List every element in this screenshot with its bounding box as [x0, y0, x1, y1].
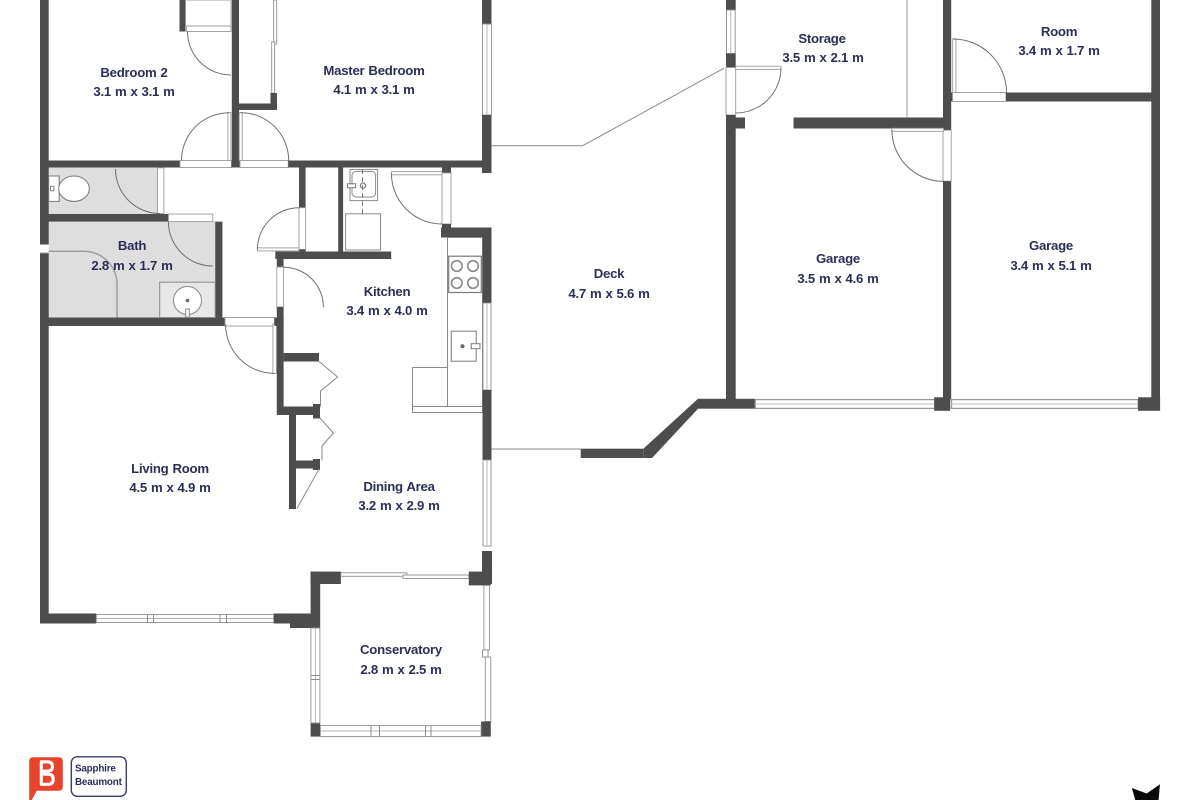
svg-text:3.2 m x 2.9 m: 3.2 m x 2.9 m — [358, 498, 439, 513]
svg-text:3.4 m x 5.1 m: 3.4 m x 5.1 m — [1010, 258, 1091, 273]
svg-text:Beaumont: Beaumont — [75, 777, 123, 788]
svg-text:4.1 m x 3.1 m: 4.1 m x 3.1 m — [333, 82, 414, 97]
svg-text:3.1 m x 3.1 m: 3.1 m x 3.1 m — [93, 84, 174, 99]
svg-text:Conservatory: Conservatory — [360, 642, 443, 657]
svg-text:Deck: Deck — [594, 266, 625, 281]
svg-text:Dining Area: Dining Area — [363, 479, 435, 494]
svg-text:3.4 m x 4.0 m: 3.4 m x 4.0 m — [346, 303, 427, 318]
svg-text:3.5 m x 4.6 m: 3.5 m x 4.6 m — [797, 271, 878, 286]
svg-text:4.5 m x 4.9 m: 4.5 m x 4.9 m — [129, 480, 210, 495]
svg-text:Sapphire: Sapphire — [75, 763, 116, 774]
svg-text:Kitchen: Kitchen — [364, 284, 411, 299]
svg-text:3.4 m x 1.7 m: 3.4 m x 1.7 m — [1018, 43, 1099, 58]
svg-text:2.8 m x 1.7 m: 2.8 m x 1.7 m — [91, 258, 172, 273]
svg-text:Master Bedroom: Master Bedroom — [323, 63, 424, 78]
svg-text:Bedroom 2: Bedroom 2 — [100, 65, 167, 80]
svg-text:4.7 m x 5.6 m: 4.7 m x 5.6 m — [568, 286, 649, 301]
svg-text:Garage: Garage — [1029, 238, 1073, 253]
svg-text:Room: Room — [1041, 24, 1077, 39]
svg-text:3.5 m x 2.1 m: 3.5 m x 2.1 m — [782, 50, 863, 65]
svg-text:2.8 m x 2.5 m: 2.8 m x 2.5 m — [360, 662, 441, 677]
svg-text:Storage: Storage — [798, 31, 845, 46]
svg-text:Living Room: Living Room — [131, 461, 209, 476]
svg-text:Bath: Bath — [118, 238, 146, 253]
svg-text:Garage: Garage — [816, 251, 860, 266]
